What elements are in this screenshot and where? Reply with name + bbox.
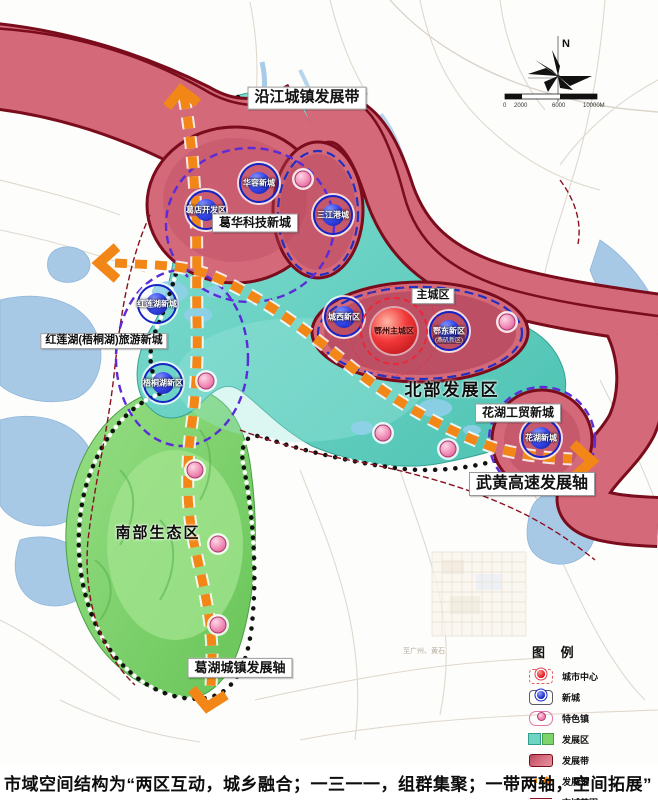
legend-title: 图 例 <box>532 642 656 661</box>
node-sanjiang-port-city: 三江港城 <box>313 195 353 235</box>
town-dot <box>499 314 516 331</box>
wuhuang-axis-label: 武黄高速发展轴 <box>469 472 595 496</box>
legend-row-dev-belt: 发展带 <box>528 753 656 767</box>
planning-map-page: N 0 2000 6000 10000M 葛店开发区 华容新城 三江港城 城西新… <box>0 0 658 800</box>
north-region-label: 北部发展区 <box>405 376 500 401</box>
node-label: 鄂州主城区 <box>374 326 414 337</box>
legend-row-town: 特色镇 <box>528 711 656 725</box>
node-wutonghu-new-district: 梧桐湖新区 <box>143 363 183 403</box>
legend-label: 特色镇 <box>562 712 589 725</box>
node-huahu-new-city: 花湖新城 <box>521 418 561 458</box>
node-label: 花湖新城 <box>525 433 557 444</box>
scale-tick-6000: 6000 <box>552 103 566 109</box>
legend-label: 发展区 <box>562 733 589 746</box>
main-city-label: 主城区 <box>412 288 455 304</box>
town-dot <box>295 171 312 188</box>
compass-north-label: N <box>562 38 570 50</box>
legend-label: 市域范围 <box>562 796 598 800</box>
legend-dev-belt-icon <box>529 754 553 767</box>
scale-tick-10000: 10000M <box>583 103 605 109</box>
town-dot <box>198 373 215 390</box>
legend-new-city-icon <box>529 690 553 705</box>
legend-row-city-center: 城市中心 <box>528 669 656 683</box>
town-dot <box>210 617 227 634</box>
town-dot <box>187 462 204 479</box>
legend-label: 发展带 <box>562 754 589 767</box>
structure-caption: 市域空间结构为“两区互动，城乡融合；一三一一，组群集聚；一带两轴，空间拓展” <box>0 770 658 795</box>
legend-row-dev-region: 发展区 <box>528 732 656 746</box>
node-label: 红莲湖新城 <box>137 299 177 310</box>
gehua-cluster-label: 葛华科技新城 <box>212 214 298 233</box>
town-dot <box>375 425 392 442</box>
node-label: 梧桐湖新区 <box>143 378 183 389</box>
south-region-label: 南部生态区 <box>115 522 200 543</box>
belt-label: 沿江城镇发展带 <box>247 87 366 110</box>
node-huarong-new-city: 华容新城 <box>239 163 279 203</box>
node-honglianhu-new-city: 红莲湖新城 <box>137 284 177 324</box>
town-dot <box>440 441 457 458</box>
legend-label: 新城 <box>562 691 580 704</box>
honglianhu-cluster-label: 红莲湖(梧桐湖)旅游新城 <box>40 333 167 349</box>
legend-city-center-icon <box>529 669 553 684</box>
node-label: 华容新城 <box>243 178 275 189</box>
legend-dev-region-icon <box>528 732 554 746</box>
legend-town-icon <box>529 711 553 726</box>
legend-row-new-city: 新城 <box>528 690 656 704</box>
scale-tick-2000: 2000 <box>514 103 528 109</box>
city-grid <box>432 552 526 636</box>
legend-label: 城市中心 <box>562 670 598 683</box>
gehu-axis-label: 葛湖城镇发展轴 <box>187 658 292 678</box>
town-dot <box>210 536 227 553</box>
huahu-cluster-label: 花湖工贸新城 <box>475 404 561 423</box>
road-destination-label: 至广州、黄石 <box>403 646 445 656</box>
node-label: 三江港城 <box>317 210 349 221</box>
legend-row-municipal-range: 市域范围 <box>528 795 656 800</box>
